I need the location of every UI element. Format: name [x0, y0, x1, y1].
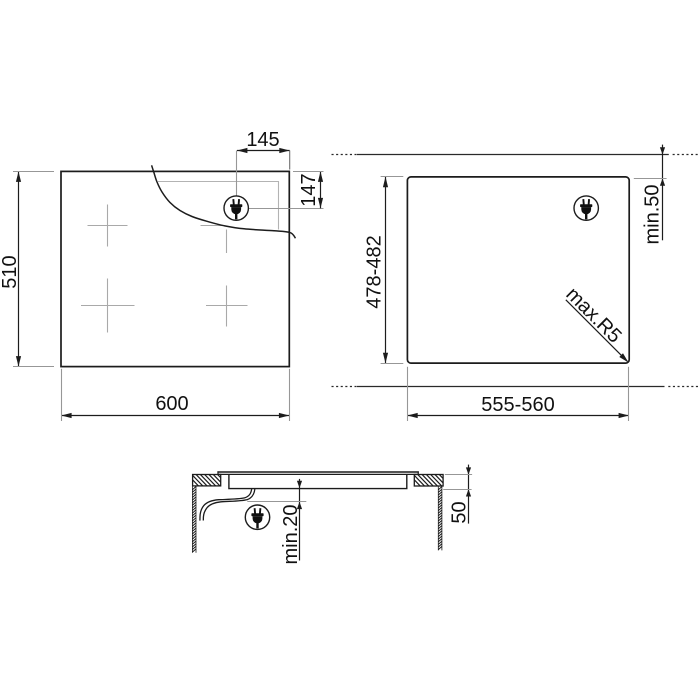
svg-text:555-560: 555-560: [481, 394, 554, 416]
svg-text:147: 147: [298, 173, 320, 206]
svg-text:min.50: min.50: [642, 184, 664, 244]
svg-text:50: 50: [449, 501, 471, 523]
svg-text:min.20: min.20: [280, 504, 302, 564]
svg-text:145: 145: [246, 129, 279, 151]
svg-text:510: 510: [0, 255, 21, 288]
svg-text:478-482: 478-482: [364, 235, 386, 308]
svg-text:600: 600: [155, 393, 188, 415]
